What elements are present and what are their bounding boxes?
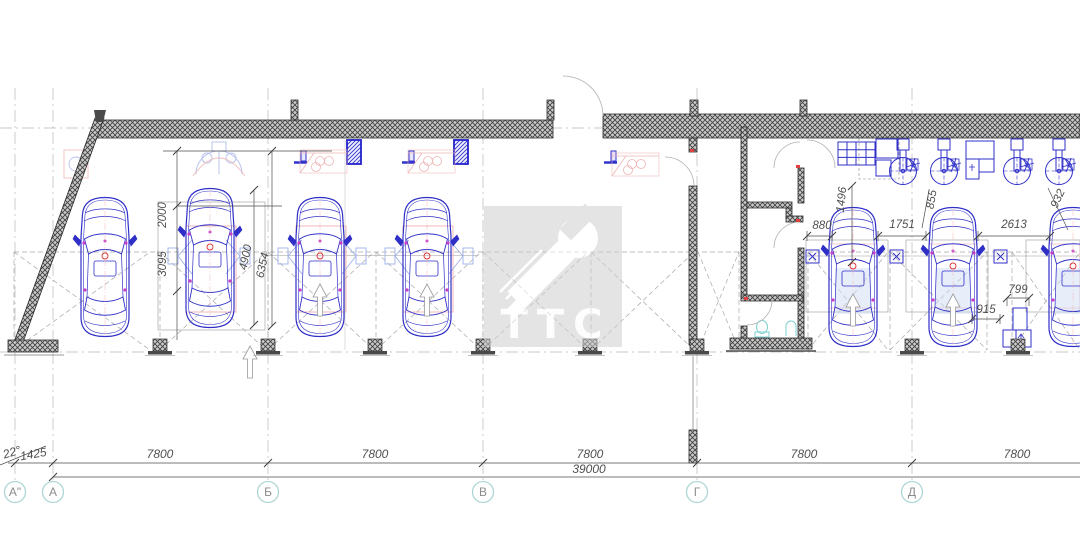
dim-text: 7800	[1004, 447, 1031, 461]
dim-text: 855	[924, 188, 939, 210]
car-top-view	[73, 198, 137, 337]
svg-text:В: В	[479, 485, 487, 499]
dim-text: 1751	[889, 219, 915, 231]
tire-machine-icon	[1004, 139, 1035, 185]
car-lifts	[168, 226, 1080, 314]
workbench	[966, 141, 994, 179]
bathroom-fixtures	[755, 321, 796, 338]
workstation-sketch	[300, 150, 347, 173]
diagonal-wall	[13, 118, 104, 345]
dim-text: 7800	[577, 447, 604, 461]
axis-bubbles: А" А Б В Г Д	[5, 482, 923, 503]
dim-total: 39000	[572, 462, 606, 476]
direction-arrow-icon	[313, 284, 327, 316]
dimensions-bottom: 22° 1425 7800 7800 7800 7800 7800 39000	[0, 443, 1080, 481]
axis-bubble-d: Д	[902, 482, 923, 503]
car-top-view	[178, 189, 242, 328]
entrance-arrow-icon	[243, 346, 257, 378]
dim-text: 7800	[791, 447, 818, 461]
watermark: ТТС	[484, 204, 622, 348]
column	[682, 339, 712, 356]
tire-machine-icon	[890, 139, 921, 185]
wall-column-blue	[454, 140, 468, 164]
svg-text:Г: Г	[694, 485, 701, 499]
exterior-wall-top-right	[603, 114, 1080, 138]
axis-bubble-a: А	[43, 482, 64, 503]
dim-text: 880	[812, 220, 832, 232]
direction-arrow-icon	[420, 284, 434, 316]
svg-text:Б: Б	[264, 485, 272, 499]
column	[145, 339, 175, 356]
svg-text:А: А	[49, 485, 57, 499]
axis-bubble-v: В	[473, 482, 494, 503]
dim-text: 915	[976, 304, 996, 316]
column	[253, 339, 283, 356]
dim-text: 1425	[19, 445, 48, 463]
room-block-walls	[726, 127, 816, 351]
workstation-sketch	[612, 153, 659, 176]
svg-text:Д: Д	[908, 485, 916, 499]
watermark-label: ТТС	[501, 302, 612, 348]
tire-machine-icon	[931, 139, 962, 185]
dim-text: 4900	[238, 243, 255, 271]
tire-machine-icon	[1046, 139, 1077, 185]
dim-text: 1496	[835, 186, 850, 213]
floor-plan-page: 2000 3095 4900 6354 1496 855 932 880 175…	[0, 0, 1080, 550]
axis-bubble-b: Б	[258, 482, 279, 503]
exterior-wall-top-left	[95, 120, 553, 138]
dim-text: 6354	[255, 252, 272, 280]
wall-column-blue	[347, 140, 361, 164]
dim-text: 799	[1008, 284, 1028, 296]
dim-text: 2613	[1000, 219, 1027, 231]
dim-text: 7800	[362, 447, 389, 461]
dim-text: 932	[1049, 187, 1068, 210]
axis-bubble-a2: А"	[5, 482, 26, 503]
floor-plan-drawing: 2000 3095 4900 6354 1496 855 932 880 175…	[0, 0, 1080, 550]
workstation-sketch	[408, 150, 455, 173]
interior-wall	[689, 186, 697, 345]
dim-text: 2000	[157, 202, 169, 229]
dim-text: 3095	[157, 251, 169, 277]
svg-text:А": А"	[9, 485, 21, 499]
axis-bubble-g: Г	[687, 482, 708, 503]
dim-text: 7800	[147, 447, 174, 461]
column	[897, 339, 927, 356]
